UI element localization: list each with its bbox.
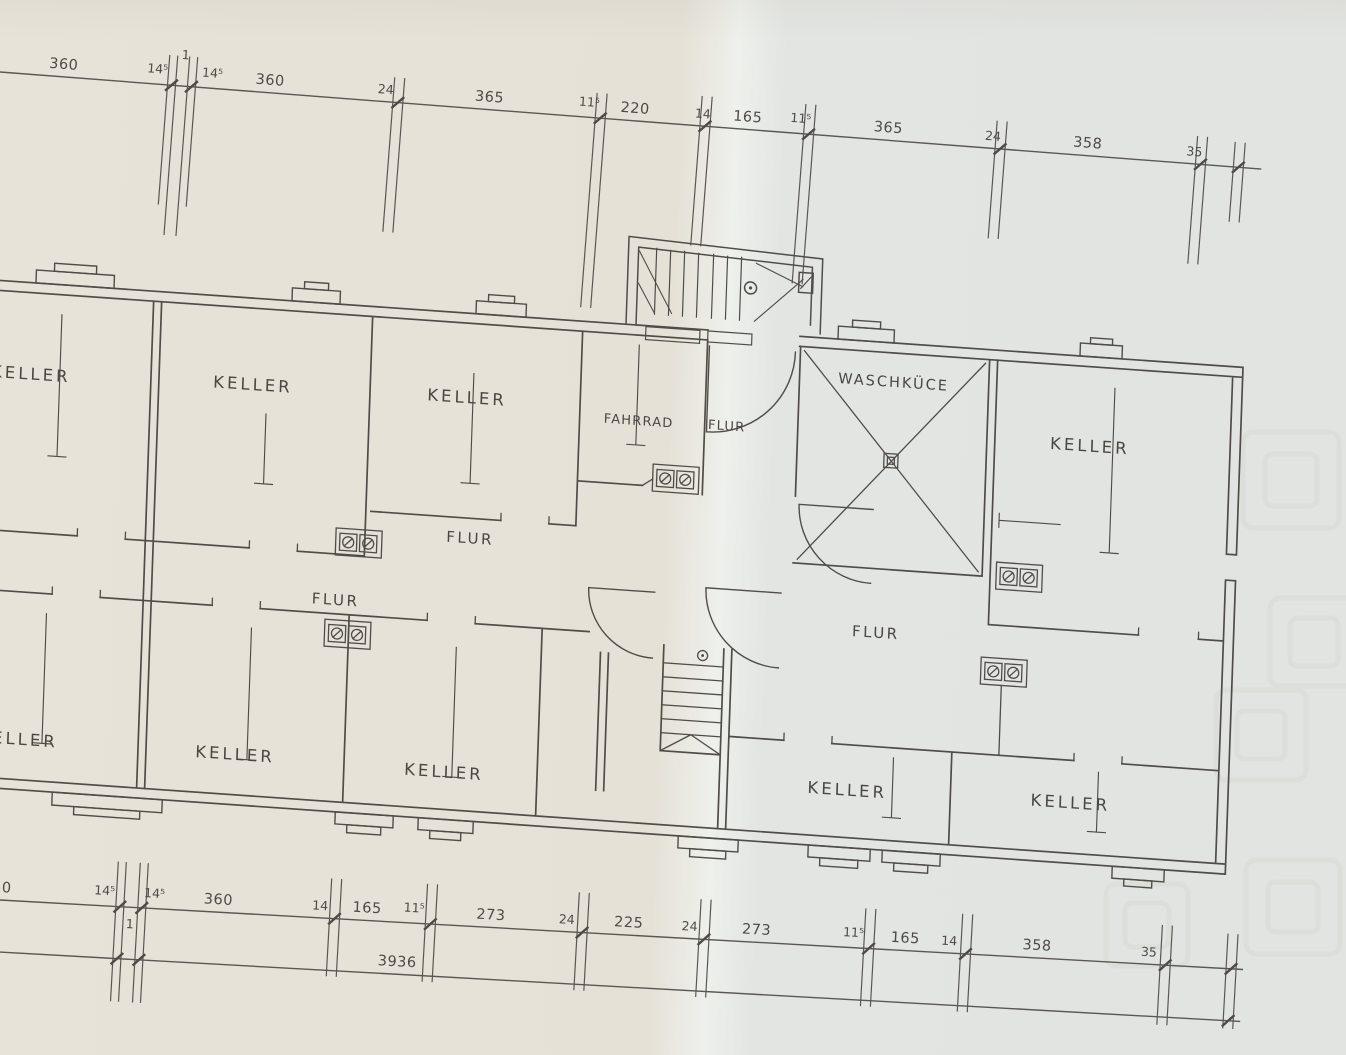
- dim-top-7: 11⁵: [578, 94, 600, 111]
- dim-top-14: 358: [1073, 135, 1103, 153]
- dim-bottom-14: 165: [890, 930, 920, 948]
- entrance-stair-steps: [654, 248, 741, 320]
- dim-bottom-5: 14: [312, 897, 329, 913]
- dim-top-15: 35: [1186, 143, 1203, 159]
- dim-bottom-11: 24: [681, 918, 698, 934]
- dim-bottom-3: 14⁵: [144, 885, 166, 901]
- dim-top-2: 1: [181, 47, 190, 63]
- waschkueche-door-arc: [797, 504, 874, 583]
- dim-bottom-9: 24: [558, 911, 575, 927]
- door-jambs: [49, 482, 1201, 769]
- room-label-flur-entry: FLUR: [708, 418, 746, 436]
- meter-box-icon: [996, 562, 1043, 592]
- bottom-dimension-chain: 0 14⁵ 1 14⁵ 360 14 165 11⁵ 273 24 225 24…: [0, 855, 1246, 1055]
- top-wall-piers: [36, 262, 1123, 359]
- dim-top-3: 14⁵: [202, 65, 224, 82]
- dim-top-6: 365: [474, 89, 504, 107]
- bottom-tick-slashes: [111, 900, 1238, 1027]
- bottom-wall-lightwells: [52, 792, 1165, 891]
- dim-top-9: 14: [694, 105, 711, 121]
- dim-top-4: 360: [255, 72, 285, 90]
- dim-bottom-12: 273: [741, 921, 771, 939]
- dim-top-0: 360: [49, 56, 79, 74]
- top-dimension-chain: 360 14⁵ 1 14⁵ 360 24 365 11⁵ 220 14 165 …: [0, 32, 1264, 358]
- dim-bottom-17: 35: [1141, 944, 1158, 960]
- top-tick-slashes: [165, 79, 1245, 174]
- room-label-keller-top-left: KELLER: [213, 372, 293, 397]
- room-label-keller-top-mid: KELLER: [427, 385, 507, 410]
- dim-bottom-0: 0: [1, 880, 12, 897]
- dim-bottom-15: 14: [941, 933, 958, 949]
- entrance-stair-bay: [626, 236, 824, 351]
- building-plan: KELLER KELLER KELLER FAHRRAD FLUR WASCHK…: [0, 190, 1246, 895]
- paper-emboss-pattern: [1106, 432, 1346, 966]
- room-label-keller-top-right: KELLER: [1050, 434, 1130, 459]
- stair-hall-door-arc: [586, 588, 654, 658]
- dim-bottom-16: 358: [1022, 937, 1052, 955]
- dim-bottom-8: 273: [476, 907, 506, 925]
- room-label-fahrrad: FAHRRAD: [603, 412, 673, 432]
- room-label-keller-bottom-mid: KELLER: [404, 760, 484, 785]
- room-label-keller-bottom-far-left: KELLER: [0, 727, 58, 752]
- room-label-keller-bottom-far-right: KELLER: [1030, 791, 1110, 816]
- room-label-keller-bottom-left: KELLER: [195, 742, 275, 767]
- dim-top-13: 24: [985, 128, 1002, 144]
- meter-box-icon: [642, 463, 699, 494]
- room-label-flur-center: FLUR: [446, 528, 494, 549]
- room-label-waschkueche: WASCHKÜCE: [838, 369, 949, 395]
- dim-top-1: 14⁵: [147, 60, 169, 77]
- dim-bottom-6: 165: [352, 900, 382, 918]
- bottom-extension-lines: [111, 862, 1239, 1055]
- dim-top-12: 365: [873, 119, 903, 137]
- dim-top-5: 24: [377, 81, 394, 97]
- floor-plan-svg: 360 14⁵ 1 14⁵ 360 24 365 11⁵ 220 14 165 …: [0, 0, 1346, 1055]
- dim-top-10: 165: [733, 108, 763, 126]
- meter-boxes: [322, 442, 1045, 758]
- dim-total-length: 3936: [377, 953, 417, 971]
- dim-bottom-10: 225: [614, 914, 644, 932]
- scanned-floor-plan: 360 14⁵ 1 14⁵ 360 24 365 11⁵ 220 14 165 …: [0, 0, 1346, 1055]
- dim-bottom-2: 1: [125, 916, 134, 931]
- dim-bottom-7: 11⁵: [403, 900, 425, 916]
- entrance-stair-hatch: [637, 251, 803, 324]
- room-label-keller-bottom-right: KELLER: [807, 778, 887, 803]
- walls: [0, 278, 1243, 874]
- dim-top-11: 11⁵: [790, 110, 812, 127]
- right-corridor-door-arc: [703, 588, 781, 668]
- room-label-flur-left: FLUR: [312, 589, 360, 610]
- dim-bottom-4: 360: [203, 891, 233, 909]
- dim-bottom-1: 14⁵: [94, 882, 116, 898]
- interior-stairs: [660, 648, 724, 755]
- room-label-flur-right: FLUR: [852, 622, 900, 643]
- dim-top-8: 220: [620, 100, 650, 118]
- dim-bottom-13: 11⁵: [843, 924, 865, 940]
- meter-box-icon: [978, 657, 1027, 757]
